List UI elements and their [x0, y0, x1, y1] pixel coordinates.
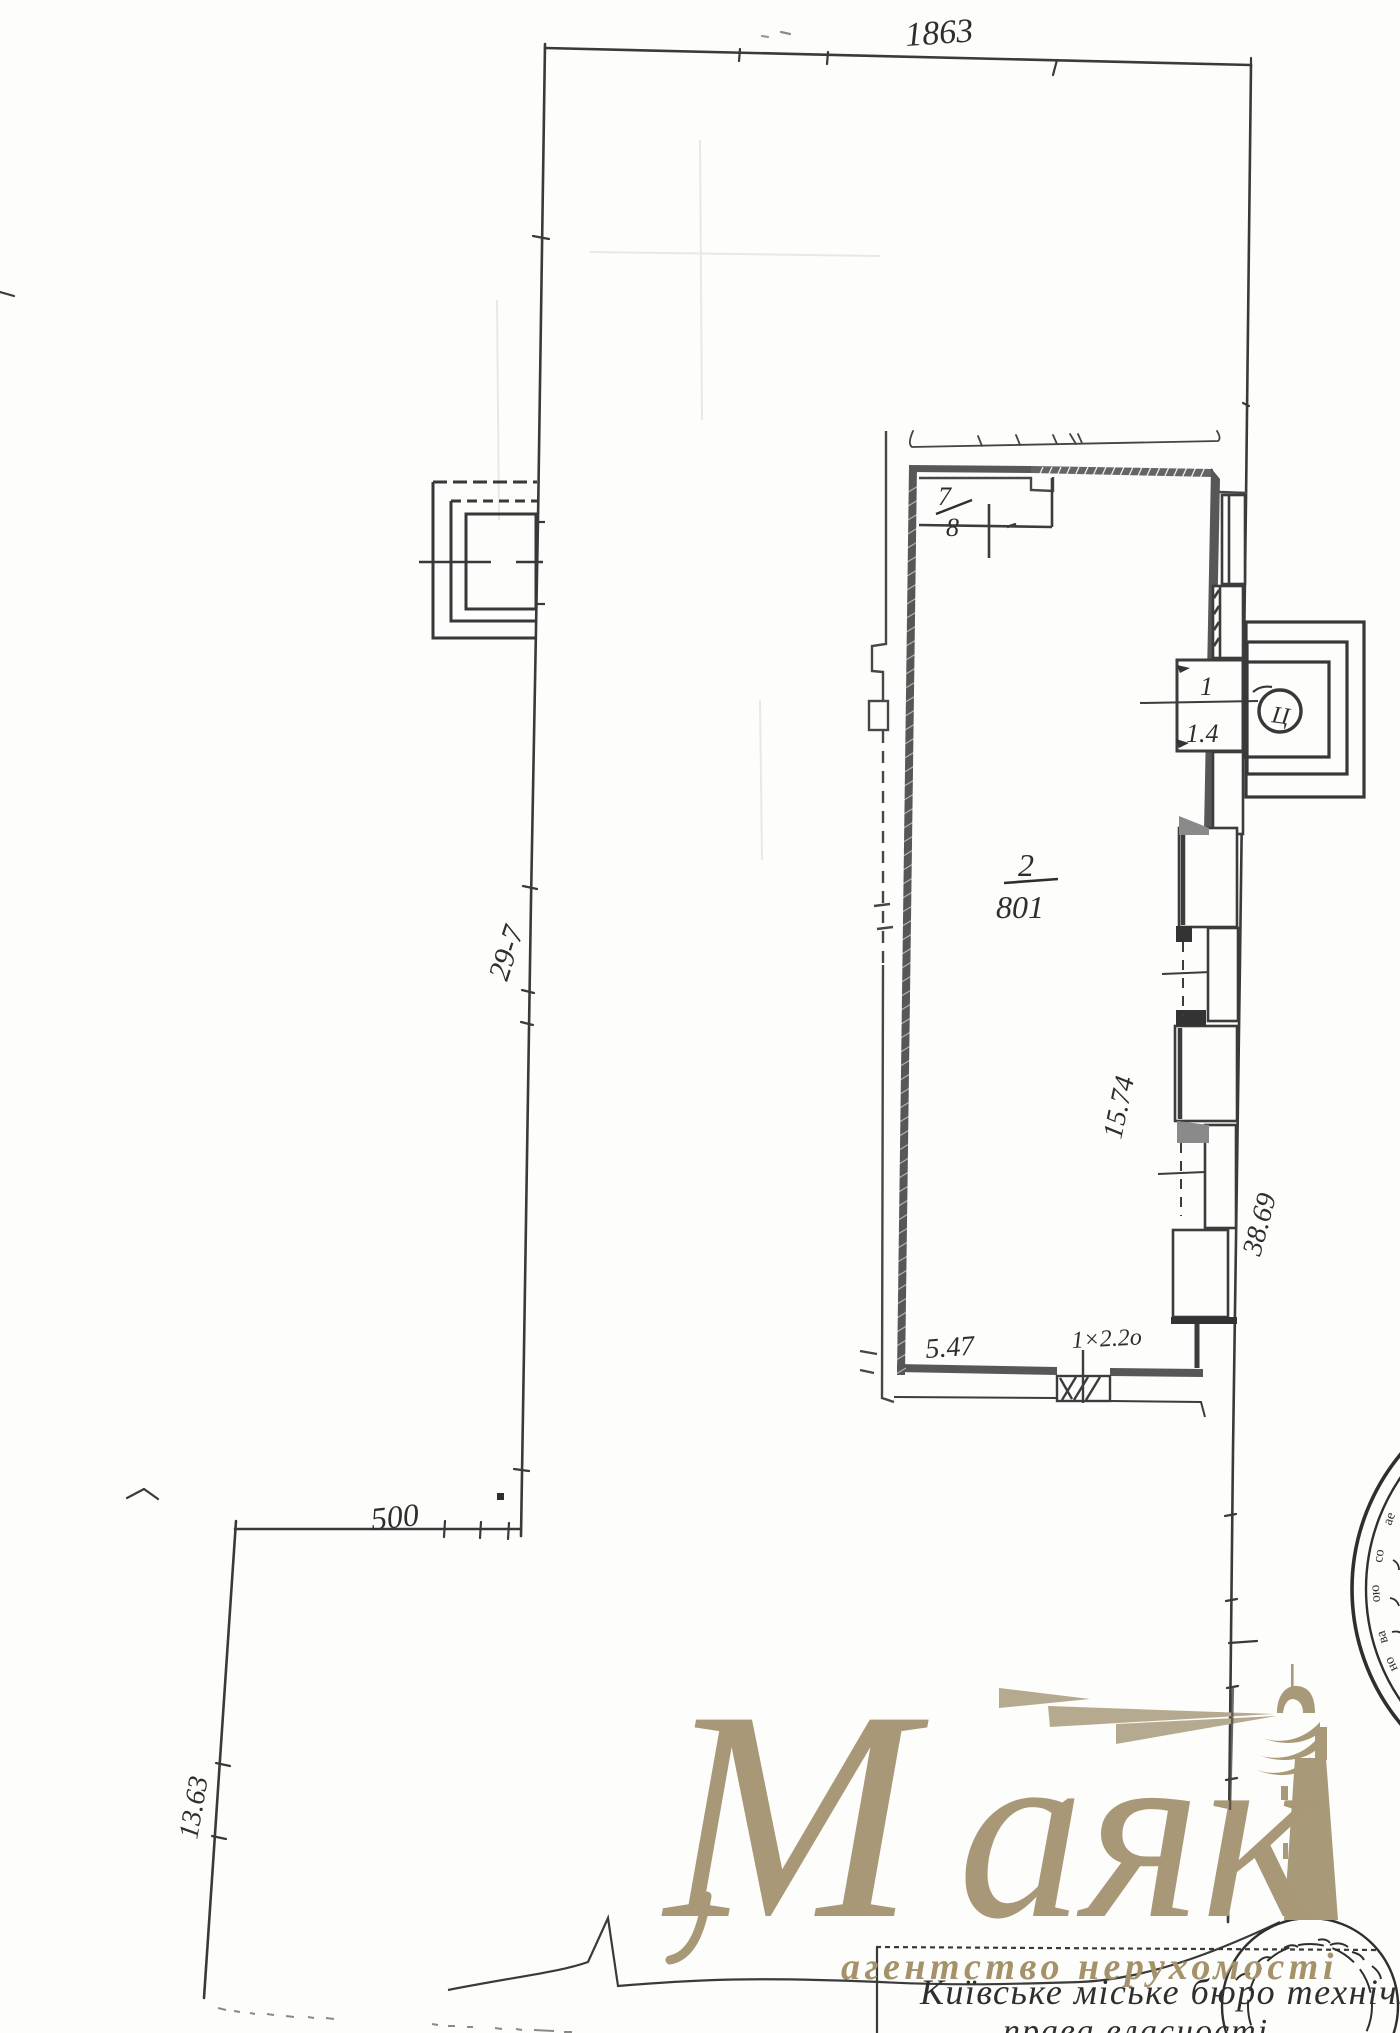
svg-text:агентство нерухомості: агентство нерухомості: [841, 1946, 1338, 1988]
svg-text:1863: 1863: [904, 12, 974, 54]
svg-text:801: 801: [996, 889, 1044, 925]
svg-text:М: М: [660, 1649, 932, 1981]
svg-text:5.47: 5.47: [924, 1331, 976, 1365]
svg-text:500: 500: [369, 1496, 421, 1537]
svg-text:7: 7: [938, 482, 952, 511]
svg-text:8: 8: [946, 513, 959, 542]
svg-text:ою: ою: [1368, 1584, 1384, 1602]
svg-text:2: 2: [1018, 847, 1034, 883]
svg-text:1.4: 1.4: [1186, 719, 1219, 748]
svg-text:1: 1: [1200, 672, 1213, 701]
svg-text:аяк: аяк: [958, 1691, 1321, 1971]
svg-text:1×2.2o: 1×2.2o: [1071, 1324, 1142, 1354]
svg-text:со: со: [1371, 1548, 1388, 1563]
svg-text:права власності: права власності: [1003, 2013, 1269, 2033]
